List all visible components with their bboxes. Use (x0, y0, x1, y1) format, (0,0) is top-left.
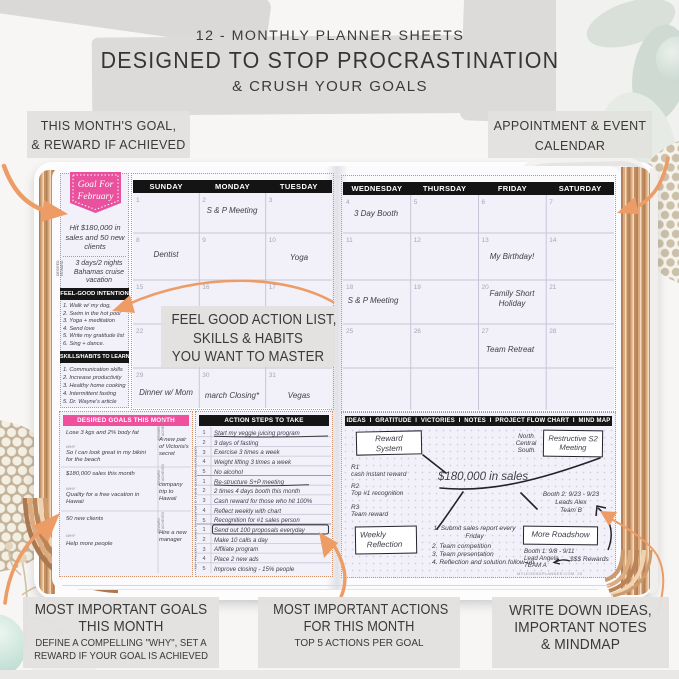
svg-text:30: 30 (202, 372, 210, 379)
svg-text:31: 31 (269, 372, 277, 379)
svg-text:22: 22 (136, 328, 144, 335)
svg-text:4: 4 (202, 508, 205, 514)
svg-text:2: 2 (202, 197, 206, 204)
svg-text:3: 3 (269, 197, 273, 204)
svg-text:5: 5 (202, 469, 205, 475)
svg-text:4: 4 (346, 199, 350, 206)
svg-text:25: 25 (346, 328, 354, 335)
svg-text:5: 5 (202, 518, 205, 524)
svg-text:21: 21 (549, 284, 557, 291)
svg-text:3: 3 (202, 450, 205, 456)
svg-text:18: 18 (346, 284, 354, 291)
svg-text:3: 3 (202, 547, 205, 553)
svg-text:19: 19 (414, 284, 422, 291)
svg-text:12: 12 (414, 237, 422, 244)
svg-text:8: 8 (136, 237, 140, 244)
svg-text:14: 14 (549, 237, 557, 244)
svg-text:4: 4 (202, 556, 205, 562)
svg-text:6: 6 (482, 199, 486, 206)
svg-text:2: 2 (202, 488, 205, 494)
svg-text:10: 10 (269, 237, 277, 244)
svg-text:28: 28 (549, 328, 557, 335)
svg-text:Goal For: Goal For (78, 180, 114, 190)
svg-text:13: 13 (482, 237, 490, 244)
svg-text:February: February (77, 192, 115, 202)
svg-text:7: 7 (549, 199, 553, 206)
svg-text:2: 2 (202, 440, 205, 446)
svg-text:11: 11 (346, 237, 353, 244)
svg-text:27: 27 (482, 328, 490, 335)
svg-text:1: 1 (202, 430, 205, 436)
svg-text:1: 1 (202, 479, 205, 485)
svg-text:2: 2 (202, 537, 205, 543)
svg-text:3: 3 (202, 498, 205, 504)
svg-text:29: 29 (136, 372, 144, 379)
svg-text:9: 9 (202, 237, 206, 244)
svg-text:1: 1 (202, 527, 205, 533)
svg-text:1: 1 (136, 197, 140, 204)
svg-text:26: 26 (414, 328, 422, 335)
svg-text:5: 5 (202, 566, 205, 572)
svg-text:4: 4 (202, 459, 205, 465)
svg-text:5: 5 (414, 199, 418, 206)
